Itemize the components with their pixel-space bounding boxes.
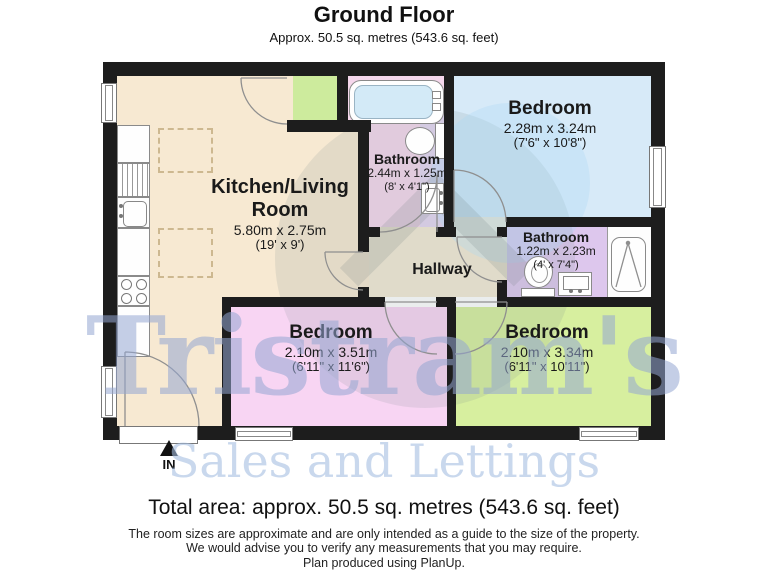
plan-header: Ground Floor Approx. 50.5 sq. metres (54… [0,2,768,45]
tap-icon [569,289,573,293]
wall-porch-bathroom [337,76,348,122]
tap-icon [432,91,441,99]
label-bedroom-top: Bedroom 2.28m x 3.24m (7'6" x 10'8") [460,98,640,151]
room-dims-imperial: (6'11" x 11'6") [241,360,421,375]
bathtub-water [354,85,433,119]
room-dims-imperial: (7'6" x 10'8") [460,136,640,151]
room-name: Kitchen/Living Room [200,176,360,222]
entrance-label: IN [152,457,186,472]
agency-watermark-tagline: Sales and Lettings [0,438,768,484]
label-bathroom-mid: Bathroom 1.22m x 2.23m (4' x 7'4") [497,229,615,272]
label-hallway: Hallway [382,261,502,279]
room-name: Bedroom [457,322,637,344]
label-bathroom-top: Bathroom 2.44m x 1.25m (8' x 4'1") [357,151,457,194]
tap-icon [119,204,123,208]
total-area-line: Total area: approx. 50.5 sq. metres (543… [0,496,768,520]
window [101,83,117,123]
drainer [117,163,150,197]
wall-hallway-bedrooms-c [505,297,651,307]
room-name: Bathroom [357,151,457,167]
wall-hallway-bedrooms-a [222,297,385,307]
toilet-base [521,288,555,297]
room-name: Bedroom [241,322,421,344]
label-bedroom-left: Bedroom 2.10m x 3.51m (6'11" x 11'6") [241,322,421,375]
hob [117,276,150,306]
room-dims-metric: 2.28m x 3.24m [460,120,640,136]
entrance-opening [119,426,198,444]
bathroom-sink [558,272,592,296]
room-dims-imperial: (19' x 9') [200,238,360,253]
bathtub [349,80,444,124]
porch-area [293,76,337,122]
disclaimer-line-3: Plan produced using PlanUp. [0,556,768,570]
tap-icon [119,214,123,218]
wall-kitchen-bedroom-left [222,297,231,426]
room-dims-metric: 5.80m x 2.75m [200,222,360,238]
wall-exterior-right [651,62,665,440]
room-dims-metric: 2.10m x 3.51m [241,344,421,360]
kitchen-counter [117,306,150,357]
tap-icon [439,201,443,205]
floorplan-page: Ground Floor Approx. 50.5 sq. metres (54… [0,0,768,576]
room-name: Bedroom [460,98,640,120]
window [101,366,117,418]
entrance-arrow-icon [160,440,178,456]
room-dims-metric: 2.44m x 1.25m [357,167,457,181]
room-dims-imperial: (4' x 7'4") [497,259,615,272]
window [579,427,639,441]
room-dims-metric: 1.22m x 2.23m [497,245,615,259]
hob-ring-icon [136,293,147,304]
wall-bedroom-top-bottom [506,217,651,227]
label-bedroom-right: Bedroom 2.10m x 3.34m (6'11" x 10'11") [457,322,637,375]
hob-ring-icon [136,279,147,290]
kitchen-counter [117,125,150,163]
total-area-text: Total area: approx. 50.5 sq. metres (543… [0,496,768,520]
room-dims-imperial: (8' x 4'1") [357,181,457,194]
page-title: Ground Floor [0,2,768,28]
hob-ring-icon [121,293,132,304]
room-dims-metric: 2.10m x 3.34m [457,344,637,360]
wall-porch-bottom [287,120,371,132]
tap-icon [578,289,582,293]
room-name: Bathroom [497,229,615,245]
furniture-outline [158,128,213,173]
wall-bathroom-bottom-left [358,227,380,237]
room-name: Hallway [382,261,502,279]
kitchen-sink [117,197,150,228]
disclaimer-line-2: We would advise you to verify any measur… [0,541,768,555]
tap-icon [432,103,441,111]
hob-ring-icon [121,279,132,290]
shower-tray [611,237,646,292]
sink-basin [563,276,589,290]
page-subtitle: Approx. 50.5 sq. metres (543.6 sq. feet) [0,30,768,45]
window [235,427,293,441]
window [649,146,666,208]
label-kitchen-living: Kitchen/Living Room 5.80m x 2.75m (19' x… [200,176,360,253]
disclaimer: The room sizes are approximate and are o… [0,527,768,570]
wall-exterior-top [103,62,665,76]
wall-bedroom-divider [447,307,456,426]
disclaimer-line-1: The room sizes are approximate and are o… [0,527,768,541]
wall-hallway-bedrooms-b [436,297,456,307]
sink-basin [123,201,147,227]
room-dims-imperial: (6'11" x 10'11") [457,360,637,375]
kitchen-counter [117,228,150,276]
